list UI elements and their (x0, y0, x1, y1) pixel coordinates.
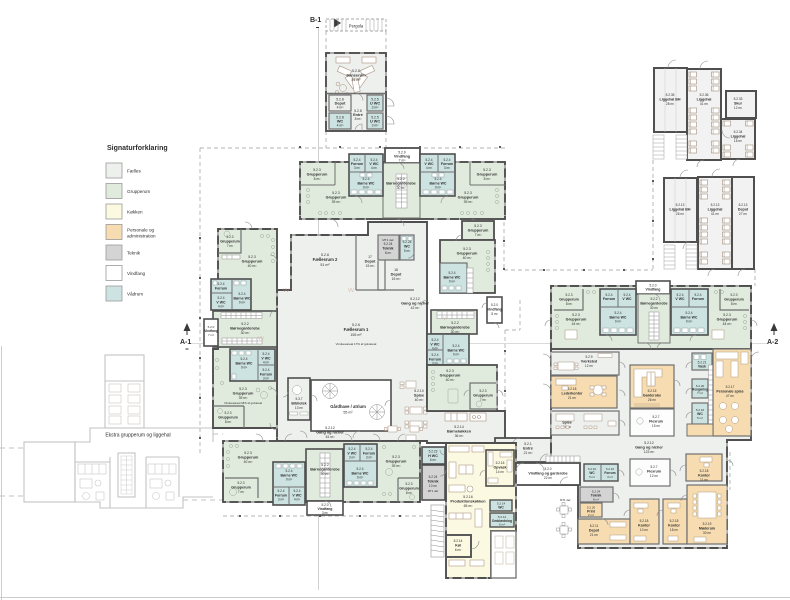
svg-text:4 m²: 4 m² (263, 361, 269, 365)
svg-text:21 m²: 21 m² (524, 451, 534, 455)
svg-text:5.2.7: 5.2.7 (652, 415, 659, 419)
svg-text:15 m²: 15 m² (652, 424, 660, 428)
svg-text:5.2.2: 5.2.2 (241, 322, 249, 326)
svg-text:Ekstra grupperum og liggehal: Ekstra grupperum og liggehal (105, 433, 170, 439)
svg-text:9 m²: 9 m² (286, 478, 292, 482)
svg-text:5.2.36: 5.2.36 (700, 93, 709, 97)
svg-text:9 m²: 9 m² (239, 301, 245, 305)
svg-text:Grupperum: Grupperum (724, 298, 744, 302)
svg-text:5.2.33: 5.2.33 (734, 97, 743, 101)
svg-text:5.2.4: 5.2.4 (356, 467, 363, 471)
svg-text:5.2.4: 5.2.4 (238, 292, 245, 296)
svg-text:3 m²: 3 m² (322, 511, 328, 515)
svg-text:Vindfang: Vindfang (646, 288, 661, 292)
svg-text:44 m²: 44 m² (723, 322, 733, 326)
svg-text:39 m²: 39 m² (464, 200, 474, 204)
svg-text:3 m²: 3 m² (354, 166, 360, 170)
svg-text:Fællesrum 2: Fællesrum 2 (313, 257, 338, 262)
svg-text:5.2.10: 5.2.10 (414, 389, 424, 393)
svg-text:5.2.4: 5.2.4 (452, 344, 459, 348)
svg-text:5.2.3: 5.2.3 (572, 313, 580, 317)
svg-text:6 m²: 6 m² (499, 523, 505, 527)
svg-text:Spise: Spise (414, 394, 424, 398)
svg-text:8 m²: 8 m² (593, 498, 599, 502)
svg-text:Grupperum: Grupperum (440, 374, 461, 378)
svg-text:8 m²: 8 m² (314, 177, 322, 181)
svg-text:30 m²: 30 m² (321, 472, 331, 476)
svg-text:18 m²: 18 m² (670, 528, 678, 532)
svg-text:5.2.4: 5.2.4 (285, 469, 292, 473)
svg-text:3 m²: 3 m² (372, 124, 380, 128)
svg-text:5.2.14: 5.2.14 (454, 425, 464, 429)
svg-text:8 m²: 8 m² (484, 177, 492, 181)
svg-text:Grupperum: Grupperum (559, 298, 579, 302)
svg-text:9 m²: 9 m² (686, 320, 692, 324)
svg-text:8 m²: 8 m² (566, 302, 572, 306)
svg-text:Grupperum: Grupperum (326, 196, 347, 200)
svg-text:18: 18 (394, 268, 398, 272)
svg-text:40 m²: 40 m² (244, 460, 254, 464)
svg-text:13 m²: 13 m² (295, 406, 303, 410)
svg-text:5.2.16: 5.2.16 (496, 461, 505, 465)
svg-text:5.2.1: 5.2.1 (524, 442, 532, 446)
svg-text:15 m²: 15 m² (366, 264, 376, 268)
svg-text:5.2.24: 5.2.24 (429, 475, 438, 479)
svg-text:Værksted: Værksted (581, 360, 597, 364)
svg-text:30 m²: 30 m² (650, 306, 658, 310)
svg-text:5.2.0: 5.2.0 (544, 467, 551, 471)
svg-text:3 m²: 3 m² (444, 166, 450, 170)
svg-text:5.2.4: 5.2.4 (262, 368, 269, 372)
svg-text:5.2.18: 5.2.18 (670, 519, 679, 523)
svg-text:Liggehal: Liggehal (697, 98, 712, 102)
svg-text:14 m²: 14 m² (496, 470, 504, 474)
svg-text:Liggehal: Liggehal (731, 135, 746, 139)
svg-text:7 m²: 7 m² (697, 391, 703, 395)
svg-text:Liggehal: Liggehal (708, 208, 723, 212)
svg-text:5.2.7: 5.2.7 (650, 465, 657, 469)
svg-text:Kontor: Kontor (668, 524, 680, 528)
svg-text:5.2.13: 5.2.13 (711, 203, 720, 207)
svg-text:5.2.4: 5.2.4 (614, 311, 621, 315)
svg-text:Køkken: Køkken (127, 210, 143, 215)
svg-text:3 m²: 3 m² (263, 377, 269, 381)
svg-text:9 m²: 9 m² (615, 320, 621, 324)
svg-text:22 m²: 22 m² (544, 476, 552, 480)
svg-text:Grupperum: Grupperum (127, 189, 150, 194)
svg-text:5.2.4: 5.2.4 (434, 177, 441, 181)
svg-text:2 m²: 2 m² (588, 513, 594, 517)
svg-text:Teknik: Teknik (127, 251, 141, 256)
svg-text:15 m²: 15 m² (392, 277, 402, 281)
svg-text:5.2.4: 5.2.4 (448, 271, 455, 275)
svg-text:5.2.34: 5.2.34 (734, 130, 743, 134)
svg-text:5.2.3: 5.2.3 (483, 168, 491, 172)
svg-text:Lederkontor: Lederkontor (562, 392, 584, 396)
svg-text:5.2.3: 5.2.3 (237, 481, 244, 485)
svg-text:Vindfang og garderobe: Vindfang og garderobe (528, 472, 567, 476)
svg-text:5.2.3: 5.2.3 (463, 247, 471, 251)
svg-text:5.2.3: 5.2.3 (723, 313, 731, 317)
svg-text:5.2.4: 5.2.4 (431, 338, 438, 342)
svg-text:7 m²: 7 m² (227, 244, 233, 248)
svg-text:5.2.24: 5.2.24 (384, 242, 393, 246)
svg-text:A-1: A-1 (180, 339, 191, 346)
svg-text:5.2.18: 5.2.18 (640, 519, 649, 523)
svg-text:5.2.4: 5.2.4 (362, 177, 369, 181)
svg-text:17: 17 (368, 255, 372, 259)
svg-text:5.2.3: 5.2.3 (479, 389, 486, 393)
svg-text:Vådrum: Vådrum (127, 291, 143, 297)
svg-text:5.2.18: 5.2.18 (700, 469, 709, 473)
svg-text:Sanserum: Sanserum (346, 73, 366, 78)
svg-text:Produktionskøkken: Produktionskøkken (450, 500, 486, 504)
svg-text:5.2.13: 5.2.13 (676, 203, 685, 207)
svg-text:Grupperum: Grupperum (233, 392, 254, 396)
svg-text:Børnegarderobe: Børnegarderobe (310, 468, 340, 472)
svg-text:5.2.4: 5.2.4 (293, 489, 300, 493)
svg-text:5.2.15: 5.2.15 (648, 389, 657, 393)
svg-text:11 m²: 11 m² (700, 478, 708, 482)
svg-text:Børnegarderobe: Børnegarderobe (230, 327, 260, 331)
svg-text:18 m²: 18 m² (734, 139, 742, 143)
svg-text:Teknik: Teknik (427, 480, 438, 484)
svg-text:Gang og nicher: Gang og nicher (401, 302, 429, 306)
svg-text:Liggehal BH: Liggehal BH (670, 208, 691, 212)
svg-text:30 m²: 30 m² (241, 331, 251, 335)
svg-text:A-2: A-2 (767, 339, 778, 346)
svg-text:Signaturforklaring: Signaturforklaring (107, 145, 168, 152)
svg-text:12 m²: 12 m² (734, 106, 742, 110)
svg-text:Depot: Depot (738, 208, 749, 212)
svg-text:5.2.23: 5.2.23 (429, 450, 438, 454)
svg-text:5.2.12: 5.2.12 (410, 297, 420, 301)
svg-text:Vindfang: Vindfang (487, 308, 502, 312)
svg-text:Garderobe: Garderobe (643, 394, 661, 398)
svg-text:Børnegarderobe: Børnegarderobe (386, 182, 416, 186)
svg-text:3 m²: 3 m² (366, 456, 372, 460)
svg-text:5.2.2: 5.2.2 (397, 177, 405, 181)
svg-text:V WC: V WC (622, 297, 632, 301)
svg-text:5.2.3: 5.2.3 (239, 387, 247, 391)
svg-text:4 m²: 4 m² (426, 166, 432, 170)
svg-text:Flexrum: Flexrum (647, 470, 661, 474)
svg-text:55 m²: 55 m² (343, 411, 353, 415)
svg-text:6 m²: 6 m² (455, 548, 461, 552)
svg-text:Vindfang: Vindfang (127, 271, 145, 276)
svg-text:6 m²: 6 m² (430, 458, 436, 462)
svg-text:10 m²: 10 m² (640, 528, 648, 532)
svg-text:5.2.3: 5.2.3 (730, 293, 737, 297)
svg-text:47 m²: 47 m² (726, 394, 734, 398)
svg-text:Grupperum: Grupperum (717, 318, 738, 322)
svg-text:12 m²: 12 m² (585, 364, 593, 368)
svg-text:Kontor: Kontor (698, 474, 710, 478)
svg-text:40 m²: 40 m² (415, 398, 425, 402)
svg-text:Gang og nicher: Gang og nicher (635, 446, 663, 450)
svg-text:5.2.18: 5.2.18 (568, 387, 577, 391)
svg-text:5.2.4: 5.2.4 (365, 447, 372, 451)
svg-text:5.2.9: 5.2.9 (585, 355, 592, 359)
svg-text:4 m²: 4 m² (218, 305, 224, 309)
svg-text:Depot: Depot (365, 260, 376, 264)
svg-text:Skur: Skur (734, 102, 743, 106)
svg-text:Grupperum: Grupperum (386, 460, 407, 464)
svg-text:Personale og: Personale og (127, 228, 155, 233)
svg-text:5.2.2: 5.2.2 (451, 321, 459, 325)
svg-text:Grupperum: Grupperum (457, 252, 478, 256)
svg-text:5.2.4: 5.2.4 (217, 282, 224, 286)
svg-text:5 m²: 5 m² (404, 249, 410, 253)
svg-text:5.2.3: 5.2.3 (565, 293, 572, 297)
svg-text:7 m²: 7 m² (208, 333, 214, 337)
svg-text:Flexrum: Flexrum (649, 420, 663, 424)
svg-text:123 m²: 123 m² (644, 450, 655, 454)
svg-text:4 m²: 4 m² (337, 106, 345, 110)
svg-text:administration: administration (127, 234, 156, 239)
svg-text:10 m²: 10 m² (429, 484, 437, 488)
svg-text:Personale spise: Personale spise (716, 390, 743, 394)
svg-text:30 m²: 30 m² (703, 531, 711, 535)
svg-text:Børnekøkken: Børnekøkken (447, 430, 472, 434)
svg-text:8 m²: 8 m² (385, 251, 391, 255)
svg-text:5.2.16: 5.2.16 (463, 495, 473, 499)
svg-text:5.2.14: 5.2.14 (454, 539, 463, 543)
svg-text:5 m²: 5 m² (589, 475, 595, 479)
svg-text:Forrum: Forrum (692, 297, 704, 301)
svg-text:Depot: Depot (589, 529, 600, 533)
svg-text:WC: WC (498, 506, 504, 510)
svg-text:4 m²: 4 m² (432, 347, 438, 351)
svg-text:39 m²: 39 m² (239, 396, 249, 400)
svg-text:26 m²: 26 m² (676, 212, 684, 216)
svg-text:Teknik: Teknik (382, 247, 393, 251)
svg-text:V WC: V WC (675, 297, 685, 301)
svg-text:39 m²: 39 m² (392, 464, 402, 468)
svg-text:8 m²: 8 m² (225, 420, 231, 424)
svg-text:Børnegarderobe: Børnegarderobe (440, 326, 470, 330)
svg-text:5.2.3: 5.2.3 (224, 411, 231, 415)
svg-text:Pergola: Pergola (349, 24, 364, 29)
svg-text:9 m²: 9 m² (453, 353, 459, 357)
svg-text:3 m²: 3 m² (607, 475, 613, 479)
svg-text:5.2.35: 5.2.35 (666, 93, 675, 97)
svg-text:9 m²: 9 m² (435, 186, 441, 190)
svg-text:Fællesrum 1: Fællesrum 1 (344, 327, 369, 332)
svg-text:36 m²: 36 m² (455, 434, 465, 438)
svg-text:42 m²: 42 m² (411, 306, 421, 310)
svg-text:5.2.3: 5.2.3 (446, 369, 454, 373)
svg-text:5.2.4: 5.2.4 (277, 489, 284, 493)
svg-text:Møderum: Møderum (699, 527, 715, 531)
svg-text:7 m²: 7 m² (399, 159, 407, 163)
svg-text:31 m²: 31 m² (351, 78, 361, 82)
svg-text:3 m²: 3 m² (349, 456, 355, 460)
svg-text:Depot: Depot (391, 273, 402, 277)
svg-text:8 m²: 8 m² (731, 302, 737, 306)
svg-text:5.2.0: 5.2.0 (491, 303, 498, 307)
svg-text:4 m²: 4 m² (294, 498, 300, 502)
svg-text:Grupperum: Grupperum (242, 260, 263, 264)
svg-text:5.2.4: 5.2.4 (431, 353, 438, 357)
svg-text:5.2.12: 5.2.12 (325, 426, 335, 430)
svg-text:5.2.3: 5.2.3 (405, 482, 412, 486)
svg-text:9 m²: 9 m² (363, 186, 369, 190)
svg-text:5.2.4: 5.2.4 (348, 447, 355, 451)
svg-text:27 m²: 27 m² (739, 212, 747, 216)
svg-text:39 m²: 39 m² (332, 200, 342, 204)
svg-text:Grupperum: Grupperum (307, 173, 328, 177)
svg-text:Gang og nicher: Gang og nicher (316, 431, 344, 435)
svg-text:5.2.3: 5.2.3 (248, 255, 256, 259)
svg-text:4 m²: 4 m² (371, 166, 377, 170)
svg-text:Forrum: Forrum (603, 297, 615, 301)
svg-text:Vinduesareal 17% af gulvareal: Vinduesareal 17% af gulvareal (336, 342, 377, 346)
svg-text:5.2.3: 5.2.3 (332, 191, 340, 195)
svg-text:Forrum: Forrum (215, 287, 227, 291)
svg-text:9 m²: 9 m² (241, 366, 247, 370)
svg-text:5.2.19: 5.2.19 (703, 522, 712, 526)
svg-text:5.2.4: 5.2.4 (685, 311, 692, 315)
svg-text:Grupperum: Grupperum (458, 196, 479, 200)
svg-text:5.2.2: 5.2.2 (321, 463, 329, 467)
svg-text:61 m²: 61 m² (326, 435, 336, 439)
svg-text:Entré: Entré (523, 447, 533, 451)
svg-text:5.2.3: 5.2.3 (313, 168, 321, 172)
svg-text:Vinduesareal 18% af gulvareal: Vinduesareal 18% af gulvareal (224, 401, 262, 405)
svg-text:9 m²: 9 m² (357, 476, 363, 480)
svg-text:Kontor: Kontor (638, 524, 650, 528)
svg-text:3 m²: 3 m² (372, 106, 380, 110)
svg-text:40 m²: 40 m² (463, 256, 473, 260)
svg-text:41 m²: 41 m² (711, 212, 719, 216)
svg-text:B-1: B-1 (310, 17, 321, 24)
svg-text:5.2.13: 5.2.13 (739, 203, 748, 207)
svg-text:Grupperum: Grupperum (399, 487, 419, 491)
svg-text:5.2.2: 5.2.2 (650, 297, 657, 301)
svg-text:7 m²: 7 m² (475, 233, 483, 237)
svg-text:7 m²: 7 m² (238, 490, 244, 494)
svg-text:5.2.3: 5.2.3 (392, 455, 400, 459)
svg-text:5.2.3: 5.2.3 (474, 224, 482, 228)
svg-text:Køl: Køl (455, 544, 461, 548)
svg-text:65 m²: 65 m² (464, 504, 474, 508)
svg-text:5.3.7: 5.3.7 (295, 397, 302, 401)
svg-text:5.2.17: 5.2.17 (726, 385, 735, 389)
svg-text:5.2.4: 5.2.4 (262, 352, 269, 356)
svg-text:5 m²: 5 m² (697, 416, 703, 420)
svg-text:155 m²: 155 m² (350, 333, 362, 337)
svg-text:MT1 dør: MT1 dør (428, 489, 439, 493)
svg-text:44 m²: 44 m² (572, 322, 582, 326)
svg-text:Gårdhave / atrium: Gårdhave / atrium (330, 404, 366, 409)
svg-text:WC: WC (404, 245, 410, 249)
svg-text:40 m²: 40 m² (248, 264, 258, 268)
svg-text:Liggehal BH: Liggehal BH (660, 98, 681, 102)
svg-text:Bibliotek: Bibliotek (291, 402, 306, 406)
svg-text:Grupperum: Grupperum (468, 229, 489, 233)
svg-text:5.2.3: 5.2.3 (464, 191, 472, 195)
svg-text:Grupperum: Grupperum (473, 394, 493, 398)
svg-text:21 m²: 21 m² (568, 396, 576, 400)
svg-text:8 m²: 8 m² (491, 312, 497, 316)
svg-text:5.2.3: 5.2.3 (244, 451, 252, 455)
svg-text:30 m²: 30 m² (397, 186, 407, 190)
svg-text:Grupperum: Grupperum (220, 240, 240, 244)
svg-text:9 m²: 9 m² (449, 280, 455, 284)
svg-text:41 m²: 41 m² (700, 102, 708, 106)
svg-text:4 m²: 4 m² (337, 124, 345, 128)
svg-text:Opvask: Opvask (494, 466, 507, 470)
svg-text:3 m²: 3 m² (278, 498, 284, 502)
svg-text:Fælles: Fælles (127, 169, 141, 174)
svg-text:MT1 dør: MT1 dør (560, 498, 571, 502)
svg-text:8 m²: 8 m² (355, 117, 363, 121)
svg-text:Grupperum: Grupperum (566, 318, 587, 322)
svg-text:Grupperum: Grupperum (477, 173, 498, 177)
svg-text:40 m²: 40 m² (446, 378, 456, 382)
svg-text:5.2.12: 5.2.12 (644, 441, 654, 445)
svg-text:5.2.4: 5.2.4 (217, 296, 224, 300)
svg-text:Grupperum: Grupperum (238, 456, 259, 460)
svg-text:12 m²: 12 m² (650, 474, 658, 478)
svg-text:Grupperum: Grupperum (218, 416, 238, 420)
svg-text:28 m²: 28 m² (666, 102, 674, 106)
svg-text:21 m²: 21 m² (590, 533, 598, 537)
svg-text:26 m²: 26 m² (648, 398, 656, 402)
svg-text:5.2.4: 5.2.4 (240, 357, 247, 361)
svg-text:51 m²: 51 m² (320, 263, 330, 267)
svg-text:5.2.11: 5.2.11 (590, 524, 599, 528)
svg-text:Vask: Vask (698, 365, 706, 369)
svg-text:Børnegarderobe: Børnegarderobe (640, 302, 667, 306)
